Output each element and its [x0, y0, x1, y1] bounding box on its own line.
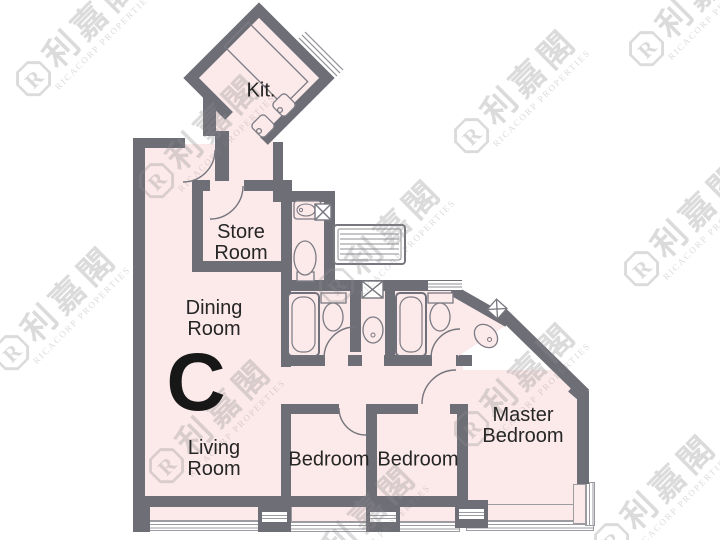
toilet	[321, 293, 346, 331]
unit-letter: C	[166, 342, 225, 424]
label-bedroom-2: Bedroom	[377, 450, 458, 471]
duct-box	[362, 281, 383, 298]
label-bedroom-1: Bedroom	[288, 450, 369, 471]
door-arc-store-room	[210, 186, 243, 219]
door-arc-bathroom-1	[324, 327, 355, 358]
label-store-room: Store Room	[214, 222, 267, 264]
wash-basin	[363, 317, 383, 343]
door-arc-master	[422, 370, 456, 404]
label-kitchen: Kit.	[247, 81, 276, 102]
window-bathroom-2	[428, 281, 462, 290]
door-arc-bathroom-2	[431, 329, 460, 358]
toilet	[294, 241, 316, 281]
bathtub	[288, 293, 319, 356]
label-living-room: Living Room	[187, 438, 240, 480]
label-master-bedroom: Master Bedroom	[482, 405, 563, 447]
ac-platform	[334, 225, 405, 264]
door-arc-entrance	[183, 150, 215, 182]
door-arc-bedroom-1	[339, 408, 366, 435]
toilet	[428, 293, 453, 331]
bathtub	[396, 293, 426, 356]
floor-plan: R 利嘉閣 RICACORP PROPERTIES R 利嘉閣 RICACORP…	[0, 0, 720, 540]
label-dining-room: Dining Room	[186, 298, 243, 340]
duct-box	[315, 204, 331, 220]
